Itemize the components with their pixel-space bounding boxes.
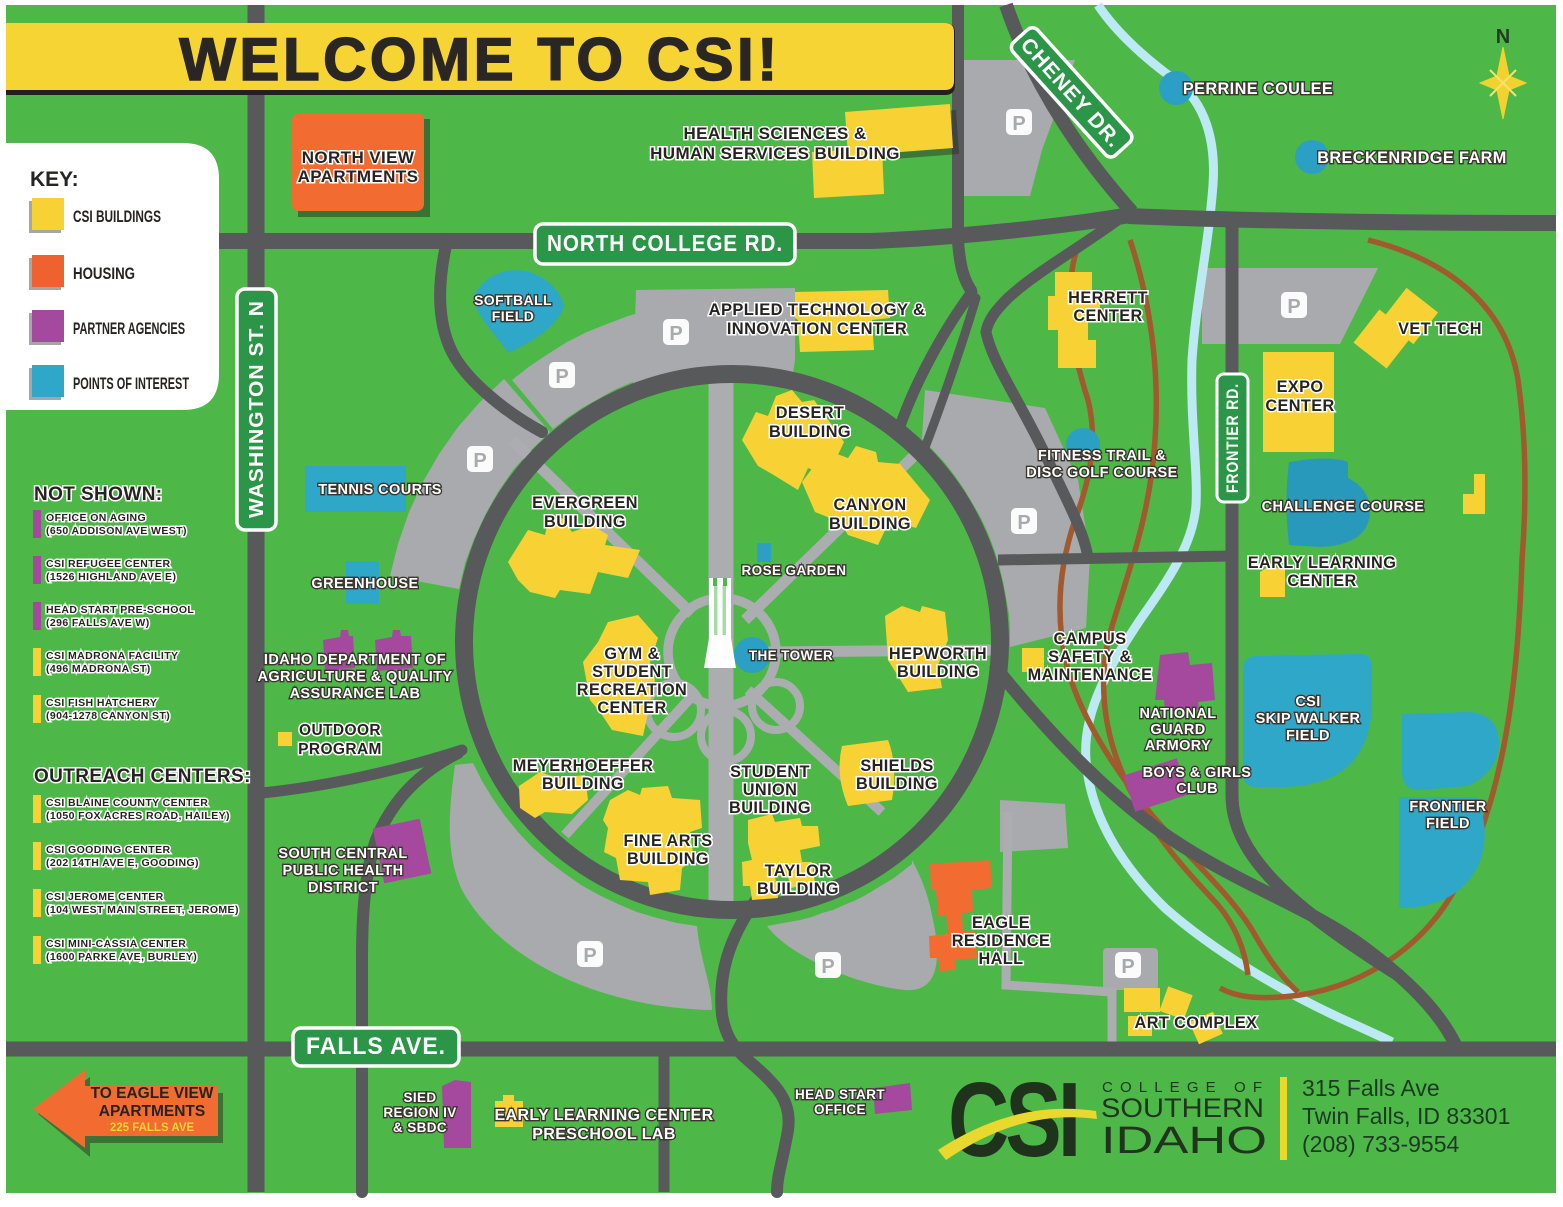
svg-text:APARTMENTS: APARTMENTS bbox=[99, 1103, 206, 1120]
svg-text:PRESCHOOL LAB: PRESCHOOL LAB bbox=[532, 1126, 676, 1143]
svg-text:APARTMENTS: APARTMENTS bbox=[298, 167, 419, 186]
svg-text:FIELD: FIELD bbox=[1286, 728, 1330, 744]
svg-text:HERRETT: HERRETT bbox=[1068, 289, 1148, 307]
svg-text:WELCOME TO CSI!: WELCOME TO CSI! bbox=[179, 26, 780, 93]
svg-text:SAFETY &: SAFETY & bbox=[1048, 648, 1131, 666]
svg-text:BUILDING: BUILDING bbox=[544, 513, 626, 531]
svg-text:KEY:: KEY: bbox=[30, 168, 79, 191]
svg-text:CSI REFUGEE CENTER: CSI REFUGEE CENTER bbox=[46, 558, 170, 570]
svg-text:CAMPUS: CAMPUS bbox=[1054, 630, 1127, 648]
svg-text:FIELD: FIELD bbox=[1426, 816, 1470, 832]
svg-text:BUILDING: BUILDING bbox=[769, 423, 851, 441]
svg-text:NORTH COLLEGE RD.: NORTH COLLEGE RD. bbox=[547, 230, 783, 256]
svg-text:BUILDING: BUILDING bbox=[627, 850, 709, 868]
svg-text:HEALTH SCIENCES &: HEALTH SCIENCES & bbox=[683, 124, 866, 143]
svg-text:EARLY LEARNING CENTER: EARLY LEARNING CENTER bbox=[494, 1107, 713, 1124]
svg-text:TENNIS COURTS: TENNIS COURTS bbox=[318, 482, 442, 498]
svg-text:(1600 PARKE AVE, BURLEY): (1600 PARKE AVE, BURLEY) bbox=[46, 951, 197, 963]
svg-text:HALL: HALL bbox=[978, 950, 1023, 968]
svg-text:NOT SHOWN:: NOT SHOWN: bbox=[34, 484, 163, 505]
svg-text:BUILDING: BUILDING bbox=[729, 799, 811, 817]
svg-text:(1526 HIGHLAND AVE E): (1526 HIGHLAND AVE E) bbox=[46, 571, 176, 583]
svg-text:ARMORY: ARMORY bbox=[1145, 738, 1211, 754]
svg-text:SOUTHERN: SOUTHERN bbox=[1101, 1093, 1264, 1123]
svg-text:STUDENT: STUDENT bbox=[592, 663, 672, 681]
svg-text:OUTREACH CENTERS:: OUTREACH CENTERS: bbox=[34, 766, 251, 787]
svg-text:NORTH VIEW: NORTH VIEW bbox=[302, 148, 415, 167]
svg-text:OUTDOOR: OUTDOOR bbox=[299, 722, 381, 739]
svg-text:DESERT: DESERT bbox=[776, 404, 844, 422]
svg-text:(202 14TH AVE E, GOODING): (202 14TH AVE E, GOODING) bbox=[46, 857, 199, 869]
svg-text:GREENHOUSE: GREENHOUSE bbox=[311, 576, 418, 592]
svg-text:CSI JEROME CENTER: CSI JEROME CENTER bbox=[46, 891, 164, 903]
svg-text:N: N bbox=[1496, 26, 1510, 48]
svg-text:SOUTH CENTRAL: SOUTH CENTRAL bbox=[278, 846, 407, 862]
svg-text:RECREATION: RECREATION bbox=[577, 681, 687, 699]
svg-text:STUDENT: STUDENT bbox=[730, 763, 810, 781]
svg-text:PERRINE COULEE: PERRINE COULEE bbox=[1183, 80, 1333, 98]
svg-text:FIELD: FIELD bbox=[492, 308, 534, 324]
svg-text:(650 ADDISON AVE WEST): (650 ADDISON AVE WEST) bbox=[46, 525, 187, 537]
svg-text:BUILDING: BUILDING bbox=[829, 515, 911, 533]
svg-text:AGRICULTURE & QUALITY: AGRICULTURE & QUALITY bbox=[257, 669, 452, 685]
svg-text:CENTER: CENTER bbox=[1073, 307, 1142, 325]
svg-text:GUARD: GUARD bbox=[1150, 722, 1205, 738]
svg-text:OFFICE: OFFICE bbox=[814, 1102, 866, 1117]
svg-text:PUBLIC HEALTH: PUBLIC HEALTH bbox=[283, 863, 404, 879]
svg-text:CSI MINI-CASSIA CENTER: CSI MINI-CASSIA CENTER bbox=[46, 938, 186, 950]
svg-text:CHALLENGE COURSE: CHALLENGE COURSE bbox=[1262, 499, 1425, 515]
svg-text:TO EAGLE VIEW: TO EAGLE VIEW bbox=[91, 1085, 214, 1102]
svg-text:CENTER: CENTER bbox=[1265, 397, 1334, 415]
svg-text:EVERGREEN: EVERGREEN bbox=[532, 494, 638, 512]
svg-text:FITNESS TRAIL &: FITNESS TRAIL & bbox=[1038, 448, 1166, 464]
svg-text:(904-1278 CANYON ST): (904-1278 CANYON ST) bbox=[46, 710, 170, 722]
svg-text:EXPO: EXPO bbox=[1277, 378, 1324, 396]
svg-text:WASHINGTON ST. N: WASHINGTON ST. N bbox=[245, 300, 268, 518]
svg-text:GYM &: GYM & bbox=[604, 645, 659, 663]
svg-text:FALLS AVE.: FALLS AVE. bbox=[306, 1033, 446, 1060]
svg-text:(296 FALLS AVE W): (296 FALLS AVE W) bbox=[46, 617, 150, 629]
svg-text:ROSE GARDEN: ROSE GARDEN bbox=[742, 563, 847, 578]
svg-text:POINTS OF INTEREST: POINTS OF INTEREST bbox=[73, 374, 189, 393]
svg-text:CANYON: CANYON bbox=[834, 496, 907, 514]
svg-text:SKIP WALKER: SKIP WALKER bbox=[1256, 711, 1361, 727]
svg-text:CLUB: CLUB bbox=[1176, 781, 1218, 797]
svg-text:UNION: UNION bbox=[743, 781, 797, 799]
svg-text:ASSURANCE LAB: ASSURANCE LAB bbox=[290, 686, 421, 702]
svg-text:EARLY LEARNING: EARLY LEARNING bbox=[1248, 554, 1397, 572]
svg-text:FRONTIER RD.: FRONTIER RD. bbox=[1224, 383, 1242, 493]
svg-text:& SBDC: & SBDC bbox=[393, 1120, 447, 1135]
svg-text:OFFICE ON AGING: OFFICE ON AGING bbox=[46, 512, 146, 524]
svg-text:BUILDING: BUILDING bbox=[897, 663, 979, 681]
svg-text:DISTRICT: DISTRICT bbox=[308, 880, 378, 896]
svg-text:NATIONAL: NATIONAL bbox=[1139, 706, 1216, 722]
svg-text:(208) 733-9554: (208) 733-9554 bbox=[1302, 1131, 1459, 1157]
svg-text:BOYS & GIRLS: BOYS & GIRLS bbox=[1143, 765, 1252, 781]
svg-text:CSI MADRONA FACILITY: CSI MADRONA FACILITY bbox=[46, 650, 178, 662]
svg-text:ART COMPLEX: ART COMPLEX bbox=[1135, 1014, 1258, 1032]
svg-text:IDAHO DEPARTMENT OF: IDAHO DEPARTMENT OF bbox=[264, 652, 446, 668]
svg-text:IDAHO: IDAHO bbox=[1101, 1120, 1267, 1162]
svg-text:(496 MADRONA ST): (496 MADRONA ST) bbox=[46, 663, 151, 675]
svg-text:HEAD START PRE-SCHOOL: HEAD START PRE-SCHOOL bbox=[46, 604, 194, 616]
svg-text:SIED: SIED bbox=[403, 1090, 436, 1105]
svg-text:SOFTBALL: SOFTBALL bbox=[474, 292, 552, 308]
svg-text:INNOVATION CENTER: INNOVATION CENTER bbox=[727, 320, 907, 338]
svg-text:CENTER: CENTER bbox=[597, 699, 666, 717]
svg-text:MEYERHOEFFER: MEYERHOEFFER bbox=[513, 757, 654, 775]
svg-text:PROGRAM: PROGRAM bbox=[298, 741, 382, 758]
svg-text:SHIELDS: SHIELDS bbox=[860, 757, 933, 775]
svg-text:HEPWORTH: HEPWORTH bbox=[889, 645, 987, 663]
svg-text:REGION IV: REGION IV bbox=[383, 1105, 456, 1120]
svg-text:BRECKENRIDGE FARM: BRECKENRIDGE FARM bbox=[1317, 149, 1507, 167]
svg-text:FINE ARTS: FINE ARTS bbox=[624, 832, 713, 850]
svg-text:CSI GOODING CENTER: CSI GOODING CENTER bbox=[46, 844, 170, 856]
svg-text:HOUSING: HOUSING bbox=[73, 264, 135, 283]
svg-text:BUILDING: BUILDING bbox=[542, 775, 624, 793]
svg-text:EAGLE: EAGLE bbox=[972, 914, 1030, 932]
svg-text:VET TECH: VET TECH bbox=[1398, 320, 1482, 338]
svg-text:BUILDING: BUILDING bbox=[856, 775, 938, 793]
svg-text:315 Falls Ave: 315 Falls Ave bbox=[1302, 1075, 1440, 1101]
svg-text:RESIDENCE: RESIDENCE bbox=[952, 932, 1051, 950]
svg-text:APPLIED TECHNOLOGY &: APPLIED TECHNOLOGY & bbox=[709, 301, 926, 319]
svg-text:FRONTIER: FRONTIER bbox=[1409, 799, 1486, 815]
svg-text:TAYLOR: TAYLOR bbox=[765, 862, 832, 880]
svg-text:THE TOWER: THE TOWER bbox=[749, 648, 833, 663]
svg-text:CSI: CSI bbox=[1295, 694, 1320, 710]
svg-text:MAINTENANCE: MAINTENANCE bbox=[1028, 666, 1153, 684]
svg-text:(1050 FOX ACRES ROAD, HAILEY): (1050 FOX ACRES ROAD, HAILEY) bbox=[46, 810, 230, 822]
svg-text:DISC GOLF COURSE: DISC GOLF COURSE bbox=[1026, 465, 1177, 481]
svg-text:CSI FISH HATCHERY: CSI FISH HATCHERY bbox=[46, 697, 157, 709]
svg-text:CSI BLAINE COUNTY CENTER: CSI BLAINE COUNTY CENTER bbox=[46, 797, 208, 809]
svg-text:CENTER: CENTER bbox=[1287, 572, 1356, 590]
svg-text:BUILDING: BUILDING bbox=[757, 880, 839, 898]
svg-text:(104 WEST MAIN STREET, JEROME): (104 WEST MAIN STREET, JEROME) bbox=[46, 904, 239, 916]
svg-text:HUMAN SERVICES BUILDING: HUMAN SERVICES BUILDING bbox=[650, 144, 900, 163]
svg-text:225 FALLS AVE: 225 FALLS AVE bbox=[110, 1122, 195, 1134]
svg-text:PARTNER AGENCIES: PARTNER AGENCIES bbox=[73, 319, 185, 338]
svg-text:HEAD START: HEAD START bbox=[795, 1087, 885, 1102]
svg-text:Twin Falls, ID 83301: Twin Falls, ID 83301 bbox=[1302, 1103, 1510, 1129]
svg-text:CSI BUILDINGS: CSI BUILDINGS bbox=[73, 207, 161, 226]
